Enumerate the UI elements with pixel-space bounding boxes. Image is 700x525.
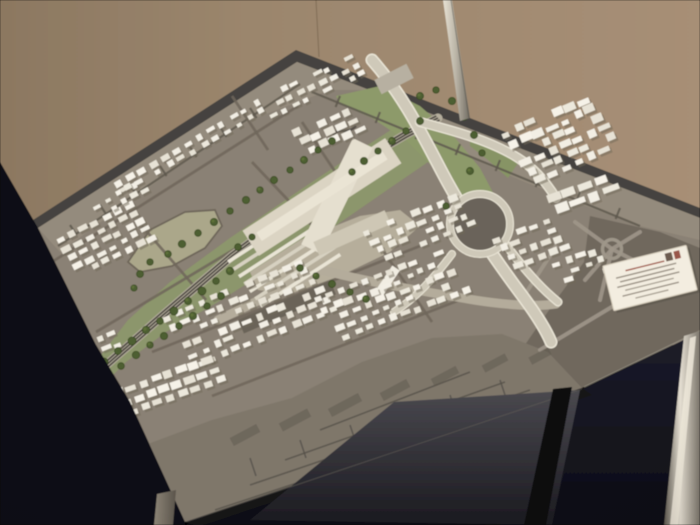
tree-highlight bbox=[417, 93, 420, 96]
model-tree bbox=[403, 128, 410, 135]
tree-highlight bbox=[211, 219, 214, 222]
tree-highlight bbox=[258, 188, 261, 191]
model-tree bbox=[198, 287, 206, 295]
model-tree bbox=[270, 176, 277, 183]
model-tree bbox=[360, 157, 367, 164]
model-tree bbox=[147, 259, 154, 266]
tree-highlight bbox=[148, 343, 151, 346]
tree-highlight bbox=[190, 313, 193, 316]
model-tree bbox=[479, 150, 486, 157]
model-tree bbox=[204, 303, 211, 310]
model-tree bbox=[328, 280, 335, 287]
model-tree bbox=[249, 234, 255, 240]
model-tree bbox=[297, 265, 304, 272]
model-tree bbox=[115, 348, 122, 355]
model-tree bbox=[132, 351, 140, 359]
city-model-scene bbox=[0, 0, 700, 525]
model-tree bbox=[118, 363, 125, 370]
model-tree bbox=[217, 292, 224, 299]
table-leg-gray bbox=[154, 490, 176, 525]
model-tree bbox=[176, 323, 183, 330]
model-tree bbox=[443, 203, 450, 210]
model-tree bbox=[213, 278, 220, 285]
model-tree bbox=[315, 147, 321, 153]
tree-highlight bbox=[349, 169, 352, 172]
model-tree bbox=[160, 332, 167, 339]
tree-highlight bbox=[143, 327, 146, 330]
tree-highlight bbox=[185, 298, 188, 301]
model-tree bbox=[433, 87, 440, 94]
model-tree bbox=[195, 230, 202, 237]
tree-highlight bbox=[132, 286, 135, 289]
tree-highlight bbox=[363, 296, 366, 299]
model-tree bbox=[137, 271, 144, 278]
tree-highlight bbox=[227, 268, 230, 271]
model-tree bbox=[287, 167, 293, 173]
model-tree bbox=[329, 138, 336, 145]
model-tree bbox=[157, 318, 164, 325]
tree-highlight bbox=[165, 251, 168, 254]
model-tree bbox=[242, 196, 249, 203]
model-tree bbox=[375, 148, 382, 155]
model-tree bbox=[470, 131, 477, 138]
tree-highlight bbox=[314, 274, 317, 277]
model-tree bbox=[235, 244, 242, 251]
model-tree bbox=[416, 117, 423, 124]
model-tree bbox=[170, 307, 178, 315]
model-tree bbox=[128, 337, 136, 345]
tree-highlight bbox=[301, 157, 304, 160]
model-tree bbox=[347, 289, 354, 296]
tree-highlight bbox=[467, 168, 470, 171]
model-tree bbox=[227, 208, 234, 215]
model-tree bbox=[178, 240, 186, 248]
model-tree bbox=[448, 97, 455, 104]
exhibition-photo bbox=[0, 0, 700, 525]
tree-highlight bbox=[389, 138, 392, 141]
